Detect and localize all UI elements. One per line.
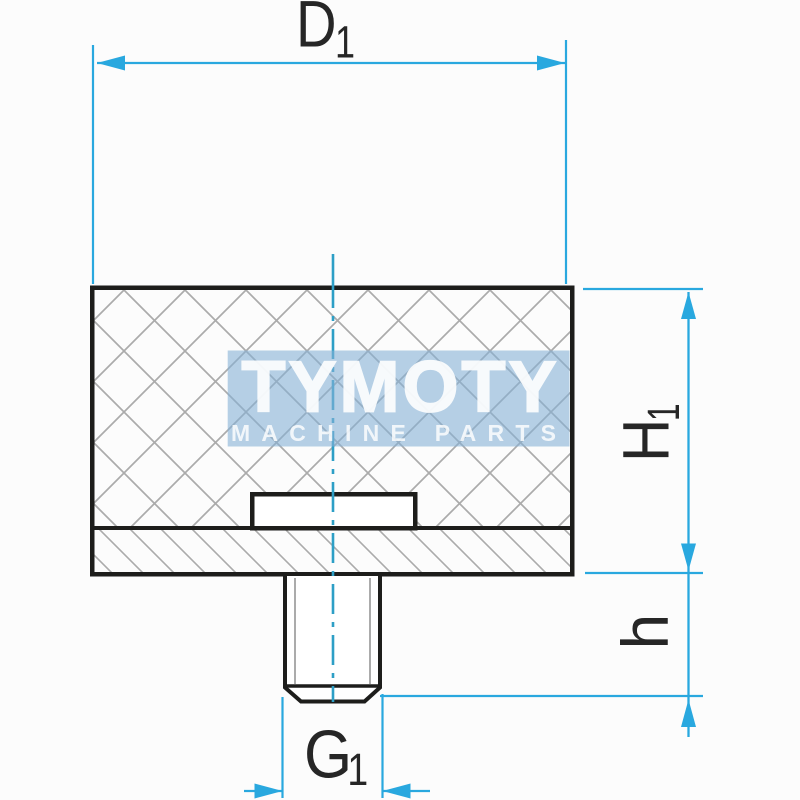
svg-text:1: 1 [335, 17, 355, 68]
svg-text:1: 1 [347, 745, 368, 795]
svg-text:1: 1 [640, 403, 690, 421]
svg-text:G: G [304, 716, 352, 792]
svg-text:TYMOTY: TYMOTY [242, 348, 557, 428]
svg-text:H: H [610, 419, 683, 462]
svg-text:h: h [608, 614, 682, 650]
svg-text:D: D [296, 0, 337, 61]
